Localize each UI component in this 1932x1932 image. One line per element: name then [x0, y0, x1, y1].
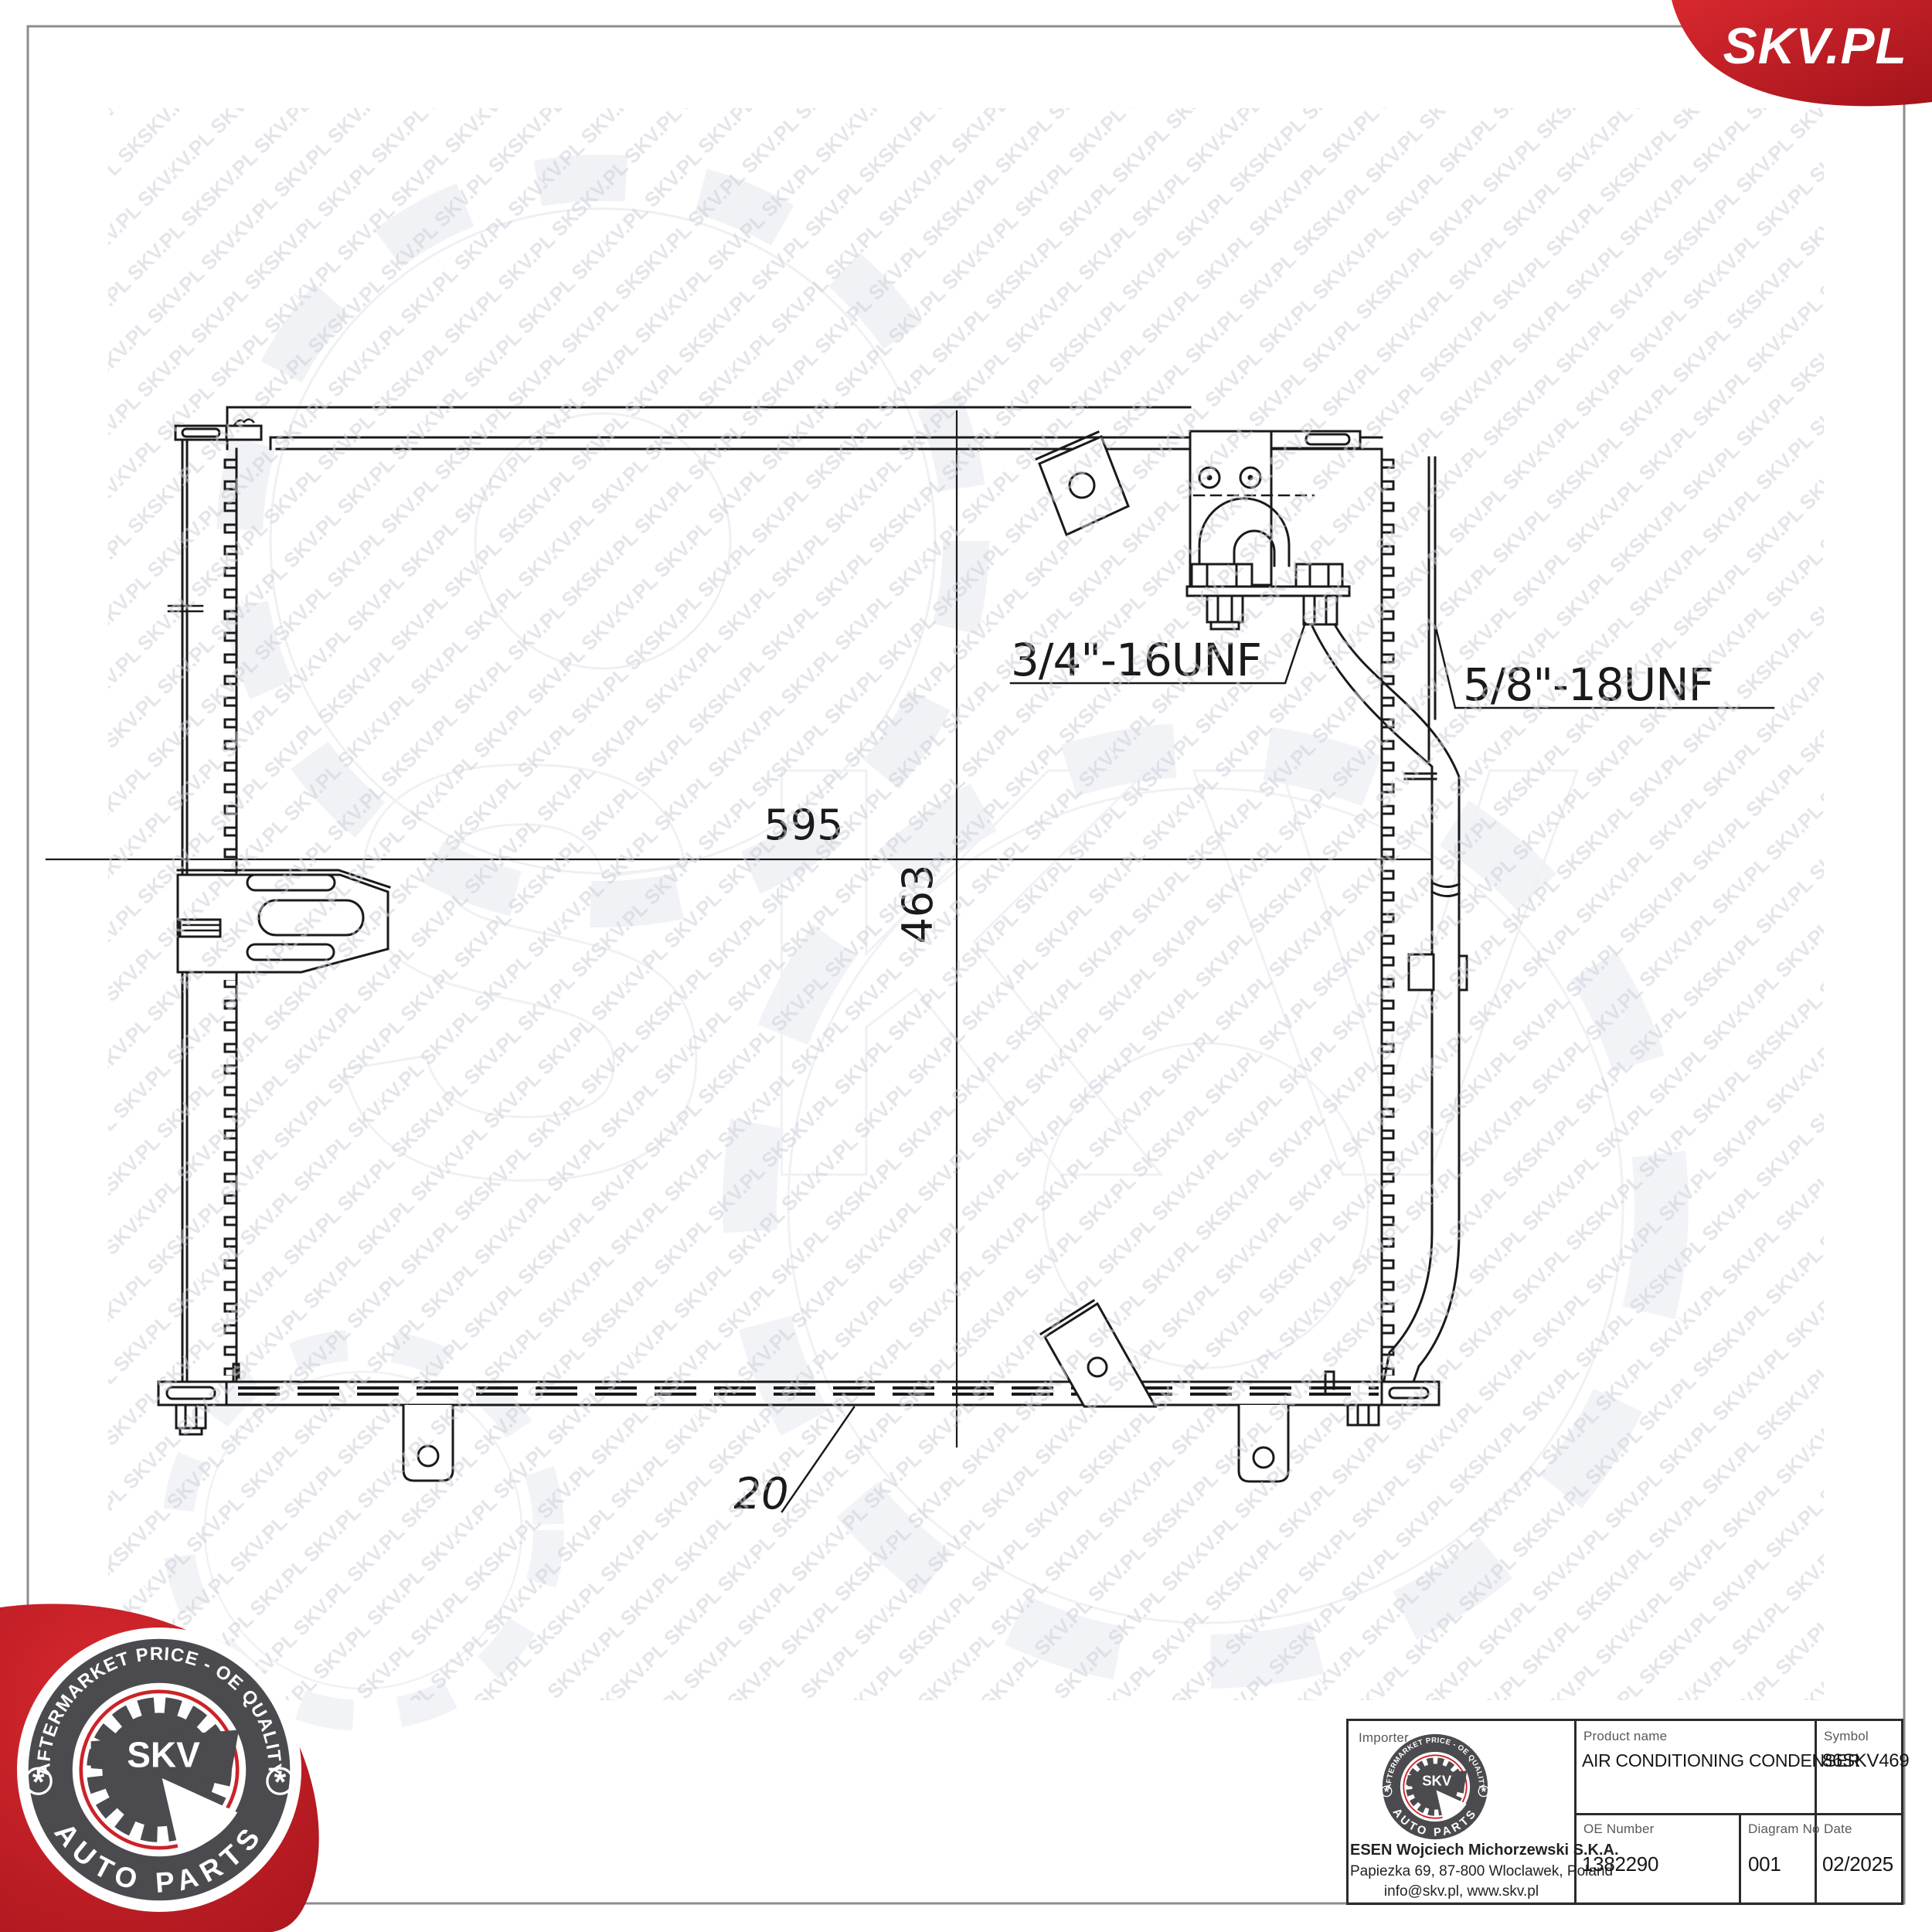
symbol-value: 86SKV469 [1822, 1750, 1909, 1772]
symbol-label: Symbol [1824, 1729, 1869, 1744]
diagram-no-label: Diagram No [1748, 1821, 1820, 1837]
importer-contact: info@skv.pl, www.skv.pl [1350, 1883, 1573, 1900]
product-name-label: Product name [1583, 1729, 1667, 1744]
oe-number-label: OE Number [1583, 1821, 1655, 1837]
diagonal-watermark-overlay [108, 108, 1824, 1700]
part-info-table: Importer ESEN Wojciech Michorzewski S.K.… [1346, 1719, 1903, 1905]
date-value: 02/2025 [1822, 1852, 1893, 1876]
catalog-page: SKV.PL SKV.PL SKV.PL SKV.PL SKV.PL SKV.P… [0, 0, 1932, 1932]
skv-badge-large [17, 1628, 301, 1912]
diagram-no-value: 001 [1748, 1852, 1781, 1876]
date-label: Date [1824, 1821, 1852, 1837]
brand-logo-text: SKV.PL [1723, 17, 1907, 74]
oe-number-value: 1382290 [1582, 1852, 1658, 1876]
importer-label: Importer [1359, 1730, 1409, 1746]
table-divider [1739, 1813, 1741, 1903]
table-divider [1574, 1813, 1901, 1815]
table-divider [1815, 1721, 1817, 1903]
brand-corner-top-right: SKV.PL [1672, 0, 1932, 106]
technical-diagram: SKV.PL SKV.PL SKV.PL SKV.PL SKV.PL SKV.P… [0, 0, 1932, 1932]
importer-address: Papiezka 69, 87-800 Wloclawek, Poland [1350, 1863, 1573, 1880]
product-name-value: AIR CONDITIONING CONDENSER [1582, 1750, 1860, 1771]
importer-name: ESEN Wojciech Michorzewski S.K.A. [1350, 1842, 1573, 1859]
